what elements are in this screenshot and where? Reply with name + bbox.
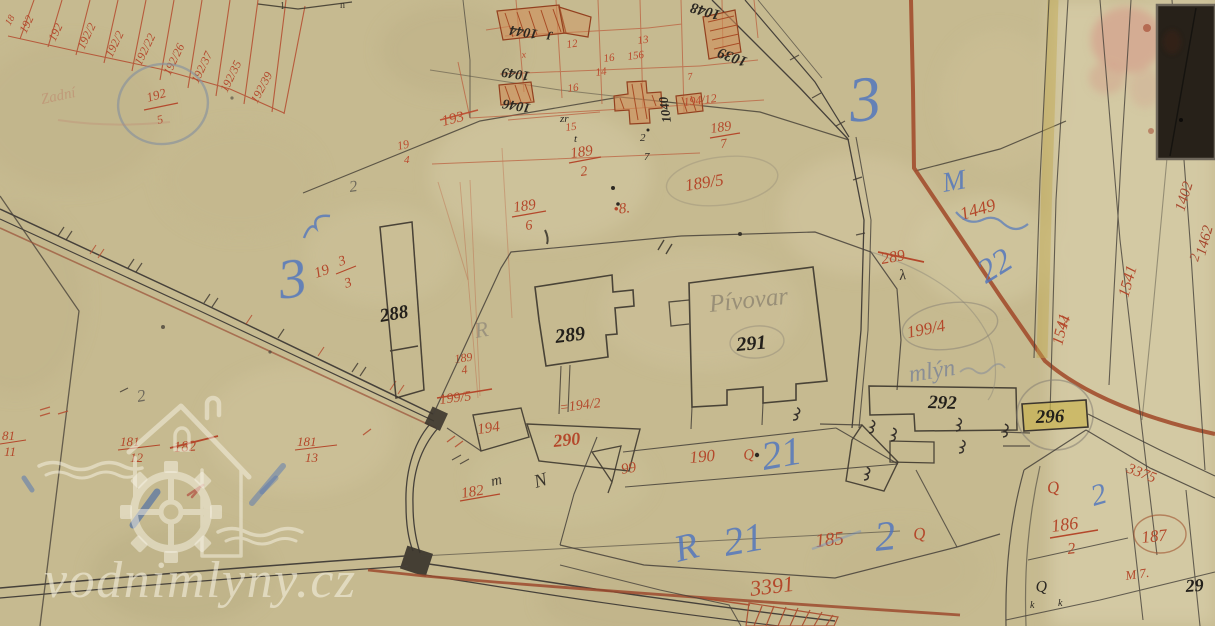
svg-text:13: 13 bbox=[305, 450, 319, 465]
svg-text:16: 16 bbox=[603, 51, 616, 64]
svg-text:29: 29 bbox=[1184, 575, 1204, 596]
svg-text:zr: zr bbox=[559, 113, 569, 125]
svg-text:187: 187 bbox=[1140, 525, 1169, 547]
svg-text:156: 156 bbox=[627, 49, 646, 63]
svg-text:7: 7 bbox=[644, 151, 650, 163]
svg-text:2: 2 bbox=[640, 132, 646, 144]
svg-text:4: 4 bbox=[404, 154, 410, 166]
svg-text:•8.: •8. bbox=[613, 200, 631, 218]
svg-text:194: 194 bbox=[476, 419, 501, 438]
svg-text:Q: Q bbox=[1035, 578, 1048, 596]
svg-text:81: 81 bbox=[2, 428, 15, 443]
svg-text:k: k bbox=[1058, 598, 1063, 609]
svg-text:vodnimlyny.cz: vodnimlyny.cz bbox=[44, 552, 357, 609]
svg-text:11: 11 bbox=[4, 444, 16, 459]
svg-text:296: 296 bbox=[1034, 406, 1065, 428]
svg-text:185: 185 bbox=[814, 528, 845, 552]
svg-text:21: 21 bbox=[720, 514, 767, 565]
svg-text:290: 290 bbox=[551, 428, 581, 451]
svg-text:k: k bbox=[1030, 600, 1035, 611]
svg-text:Q: Q bbox=[912, 523, 927, 544]
svg-text:14: 14 bbox=[595, 65, 608, 78]
svg-text:13: 13 bbox=[637, 33, 650, 46]
svg-text:n: n bbox=[340, 0, 345, 11]
svg-text:16: 16 bbox=[567, 81, 580, 94]
svg-text:190: 190 bbox=[689, 446, 717, 467]
svg-text:1: 1 bbox=[280, 1, 285, 12]
svg-text:21: 21 bbox=[758, 428, 805, 479]
svg-text:186: 186 bbox=[1050, 513, 1079, 536]
svg-text:12: 12 bbox=[566, 37, 579, 50]
svg-text:289: 289 bbox=[553, 322, 586, 348]
svg-text:291: 291 bbox=[735, 331, 768, 356]
svg-text:181: 181 bbox=[297, 434, 317, 449]
svg-text:292: 292 bbox=[927, 392, 958, 414]
